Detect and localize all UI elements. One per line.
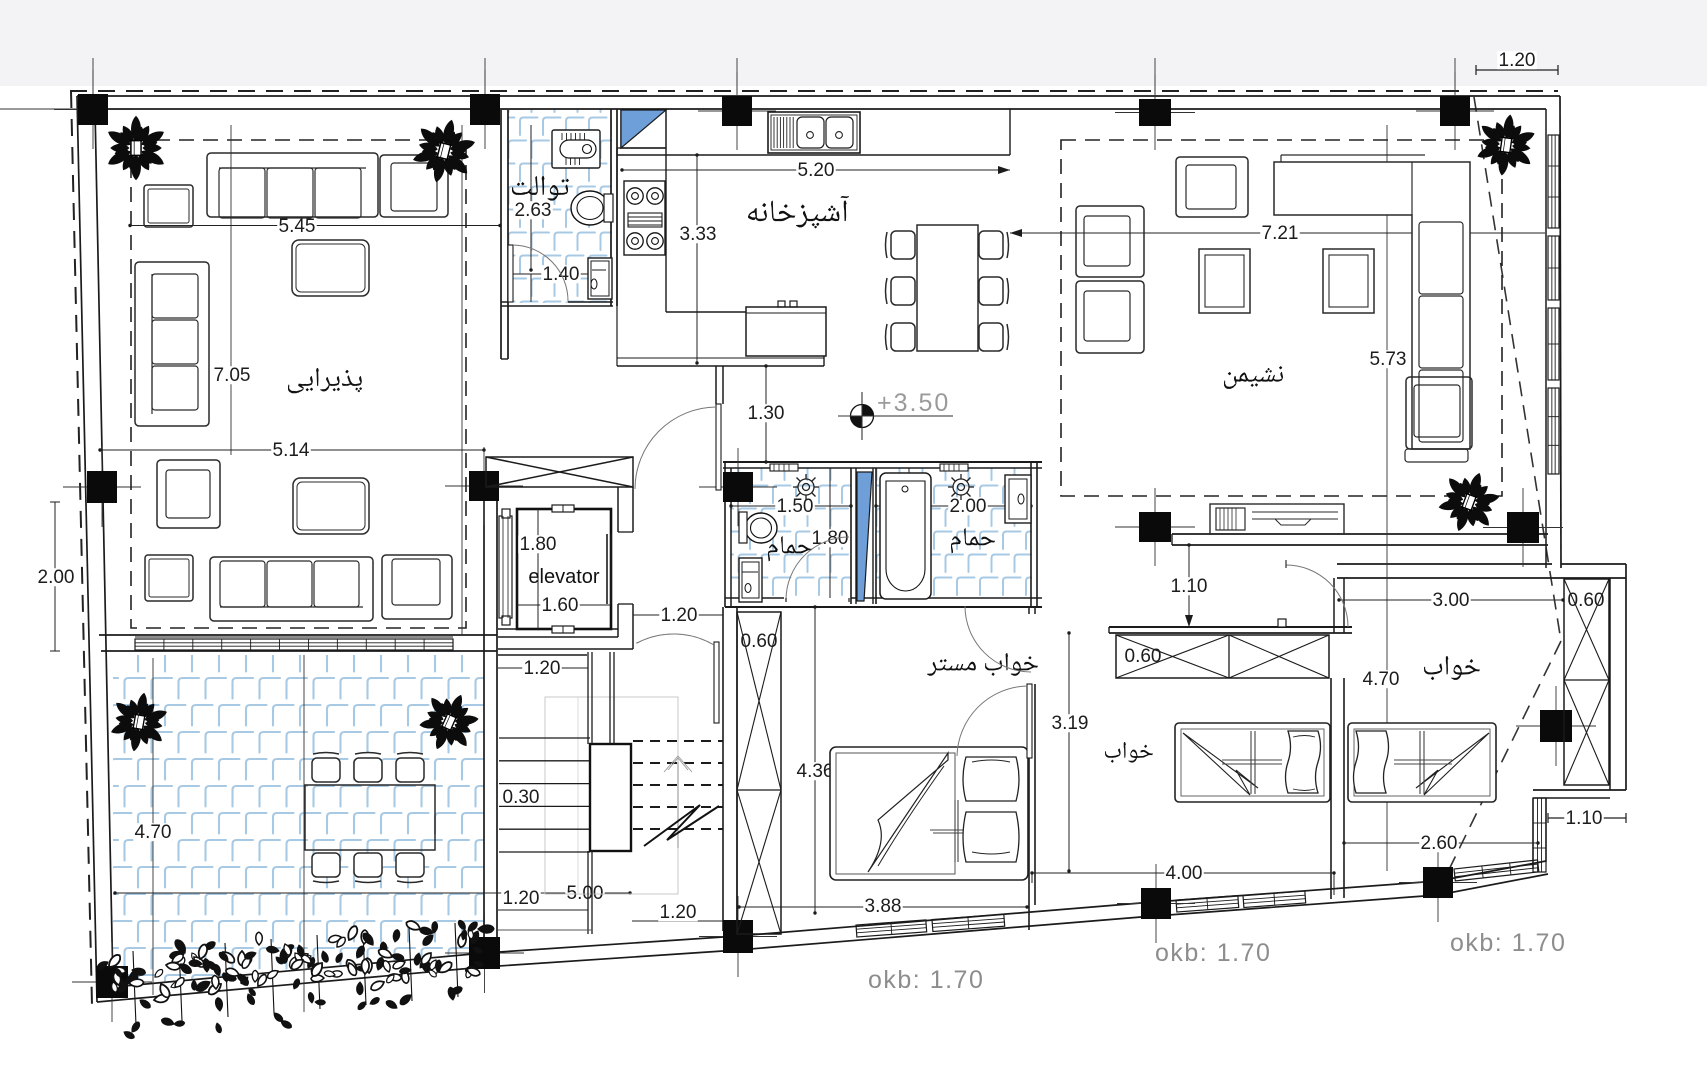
svg-text:5.14: 5.14 [273, 440, 310, 461]
svg-text:5.00: 5.00 [567, 883, 604, 904]
svg-text:5.20: 5.20 [798, 160, 835, 181]
svg-text:5.73: 5.73 [1370, 349, 1407, 370]
svg-text:1.80: 1.80 [520, 534, 557, 555]
svg-text:1.20: 1.20 [503, 888, 540, 909]
svg-text:7.05: 7.05 [214, 365, 251, 386]
svg-text:okb: 1.70: okb: 1.70 [1155, 939, 1271, 967]
svg-text:1.20: 1.20 [660, 902, 697, 923]
svg-text:2.00: 2.00 [950, 496, 987, 517]
svg-text:1.20: 1.20 [1499, 50, 1536, 71]
svg-text:3.19: 3.19 [1052, 713, 1089, 734]
svg-text:5.45: 5.45 [279, 216, 316, 237]
svg-text:1.20: 1.20 [524, 658, 561, 679]
svg-text:2.60: 2.60 [1421, 833, 1458, 854]
svg-text:3.88: 3.88 [865, 896, 902, 917]
svg-text:4.00: 4.00 [1166, 863, 1203, 884]
svg-text:0.60: 0.60 [1125, 646, 1162, 667]
svg-text:1.10: 1.10 [1566, 808, 1603, 829]
svg-text:2.63: 2.63 [515, 200, 552, 221]
svg-text:4.70: 4.70 [1363, 669, 1400, 690]
svg-text:3.00: 3.00 [1433, 590, 1470, 611]
svg-text:7.21: 7.21 [1262, 223, 1299, 244]
svg-text:elevator: elevator [528, 566, 599, 588]
svg-text:1.60: 1.60 [542, 595, 579, 616]
svg-text:1.30: 1.30 [748, 403, 785, 424]
svg-text:2.00: 2.00 [38, 567, 75, 588]
svg-text:4.70: 4.70 [135, 822, 172, 843]
svg-text:1.10: 1.10 [1171, 576, 1208, 597]
svg-text:4.36: 4.36 [797, 761, 834, 782]
svg-text:3.33: 3.33 [680, 224, 717, 245]
svg-text:+3.50: +3.50 [877, 389, 950, 417]
svg-text:okb: 1.70: okb: 1.70 [1450, 929, 1566, 957]
svg-text:0.30: 0.30 [503, 787, 540, 808]
svg-text:1.20: 1.20 [661, 605, 698, 626]
svg-text:1.50: 1.50 [777, 496, 814, 517]
svg-text:okb: 1.70: okb: 1.70 [868, 966, 984, 994]
